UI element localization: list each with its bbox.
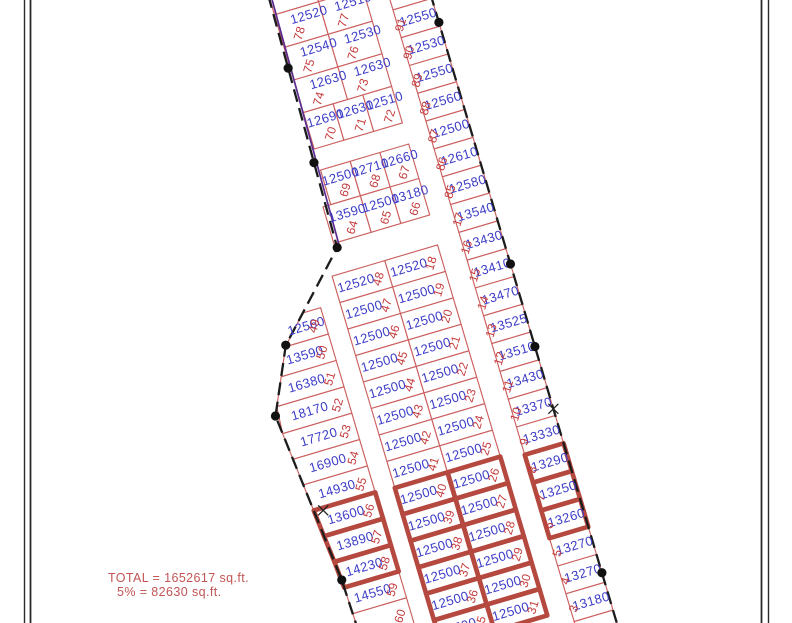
- survey-point-dot: [309, 158, 318, 167]
- survey-point-dot: [333, 243, 342, 252]
- subdivision-plat-canvas: 1252078125107712540751253076126307412630…: [0, 0, 792, 623]
- plat-drawing: 1252078125107712540751253076126307412630…: [0, 0, 792, 623]
- survey-point-dot: [506, 259, 515, 268]
- survey-point-dot: [434, 18, 443, 27]
- total-area-text: TOTAL = 1652617 sq.ft.: [108, 571, 249, 585]
- survey-point-dot: [530, 342, 539, 351]
- area-annotation: TOTAL = 1652617 sq.ft. 5% = 82630 sq.ft.: [108, 571, 249, 599]
- five-percent-area-text: 5% = 82630 sq.ft.: [117, 585, 221, 599]
- survey-point-dot: [337, 575, 346, 584]
- survey-point-dot: [284, 63, 293, 72]
- survey-point-dot: [597, 568, 606, 577]
- survey-point-dot: [271, 411, 280, 420]
- survey-point-dot: [281, 341, 290, 350]
